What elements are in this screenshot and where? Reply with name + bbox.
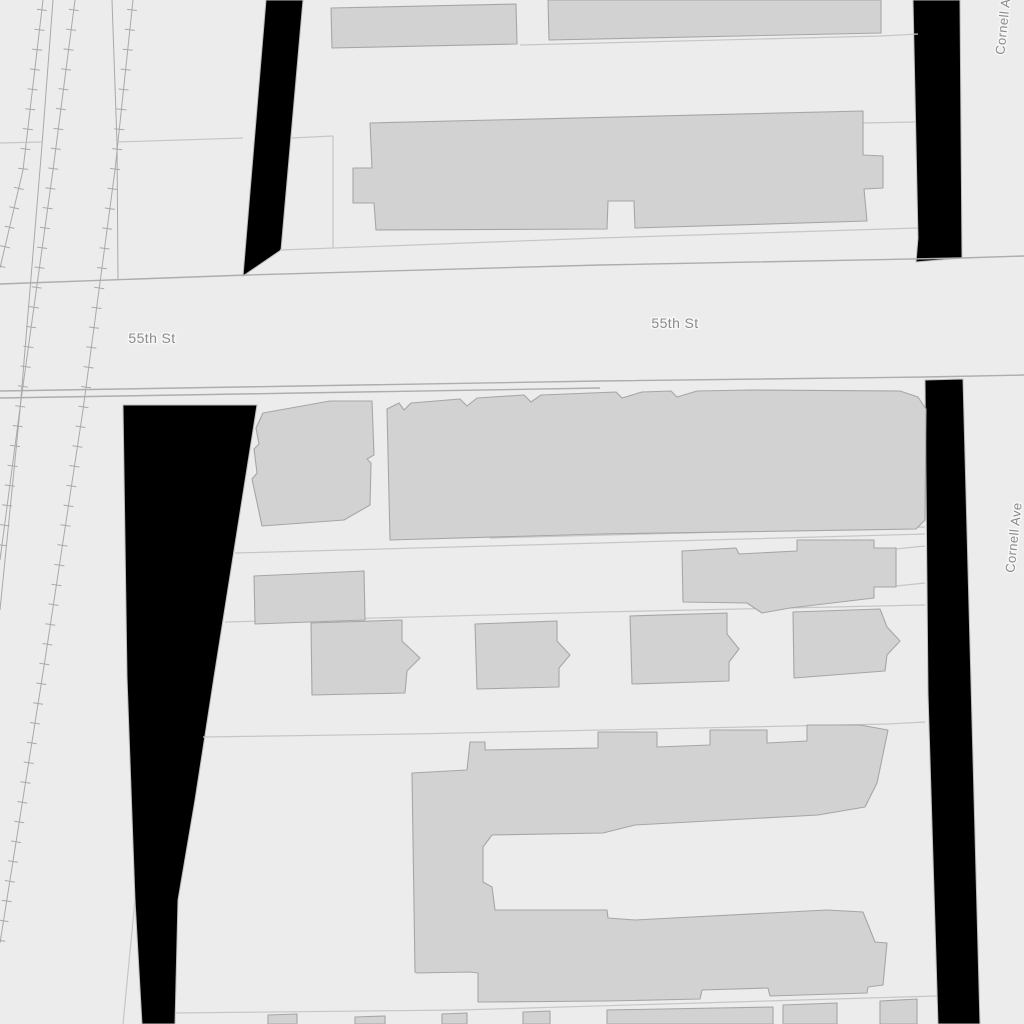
building-top-small-west <box>331 4 517 48</box>
building-row3-house-4 <box>793 609 900 678</box>
map-svg: 55th St55th StCornell AveCornell Ave <box>0 0 1024 1024</box>
building-bottom-sliver-4 <box>523 1011 550 1024</box>
building-row1-large <box>387 390 926 540</box>
alley-void-upper-right <box>913 0 962 262</box>
building-row1-west <box>252 401 374 526</box>
building-bottom-sliver-6 <box>783 1003 837 1024</box>
building-row3-house-2 <box>475 621 570 689</box>
building-row3-house-3 <box>630 613 739 684</box>
building-bottom-sliver-5 <box>607 1007 773 1024</box>
building-bottom-sliver-3 <box>442 1013 467 1024</box>
building-top-small-east <box>548 0 881 40</box>
building-bottom-sliver-1 <box>268 1014 297 1024</box>
street-label-55th-st-west: 55th St <box>128 330 175 346</box>
building-bottom-sliver-2 <box>355 1016 385 1024</box>
building-row2-small-west <box>254 571 365 624</box>
street-label-55th-st-east: 55th St <box>651 315 698 331</box>
map-canvas[interactable]: 55th St55th StCornell AveCornell Ave <box>0 0 1024 1024</box>
building-bottom-sliver-7 <box>880 999 917 1024</box>
